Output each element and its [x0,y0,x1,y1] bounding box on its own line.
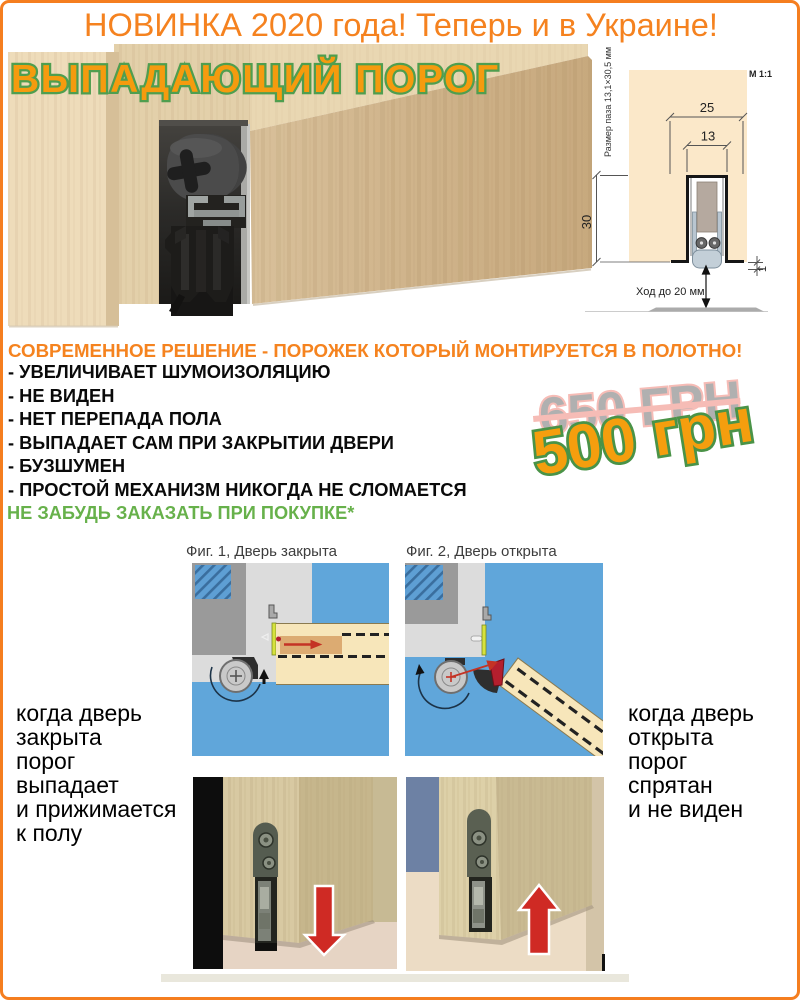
svg-text:1: 1 [757,266,769,272]
svg-text:500 грн: 500 грн [528,388,758,489]
svg-text:Размер паза 13,1×30,5 мм: Размер паза 13,1×30,5 мм [603,47,613,157]
svg-text:ВЫПАДАЮЩИЙ ПОРОГ: ВЫПАДАЮЩИЙ ПОРОГ [11,56,500,101]
svg-text:M 1:1: M 1:1 [749,69,772,79]
svg-text:13: 13 [701,129,715,144]
svg-text:25: 25 [700,100,714,115]
svg-text:Ход до 20 мм: Ход до 20 мм [636,286,705,298]
svg-text:30: 30 [580,215,594,229]
